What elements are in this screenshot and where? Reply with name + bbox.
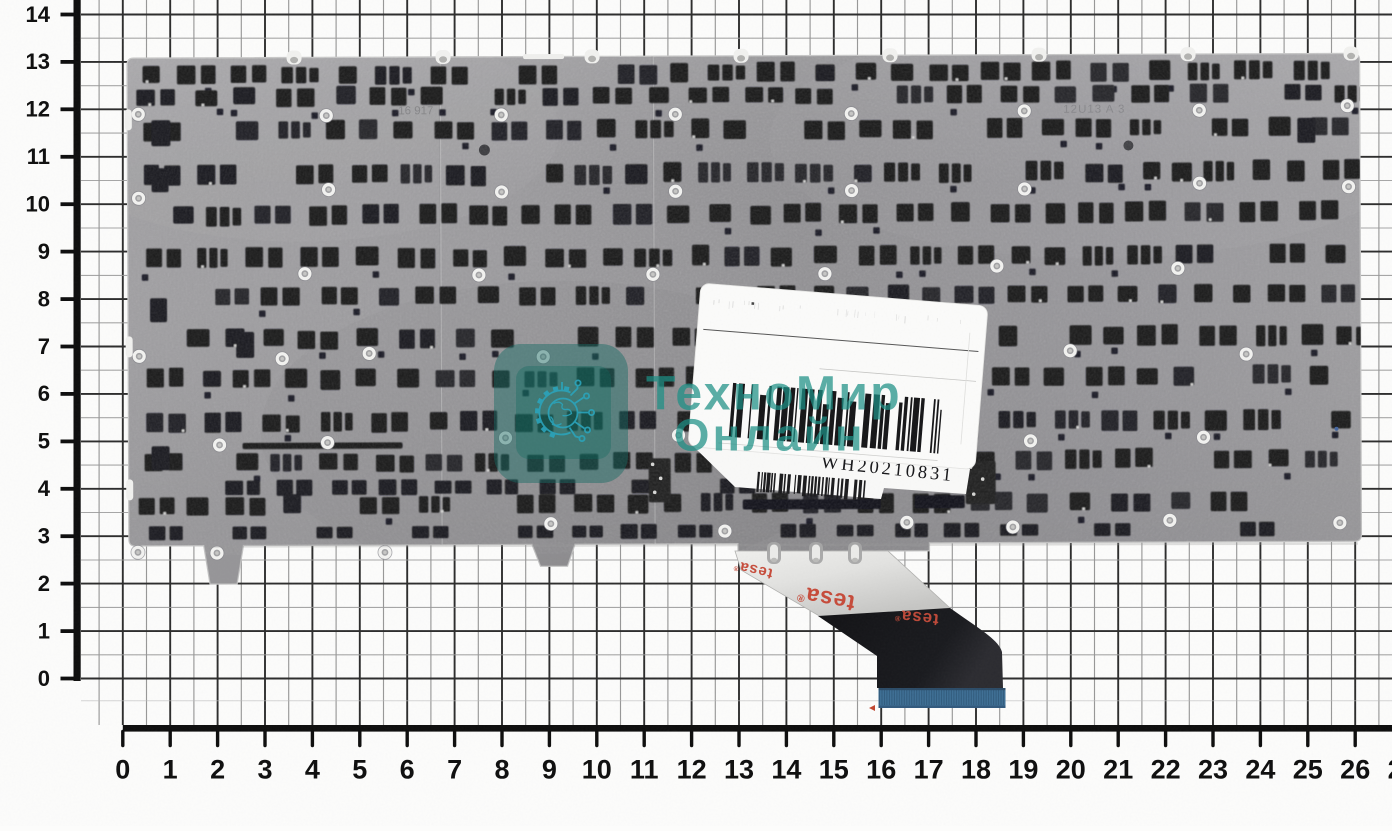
svg-text:Онлайн: Онлайн xyxy=(674,410,866,461)
